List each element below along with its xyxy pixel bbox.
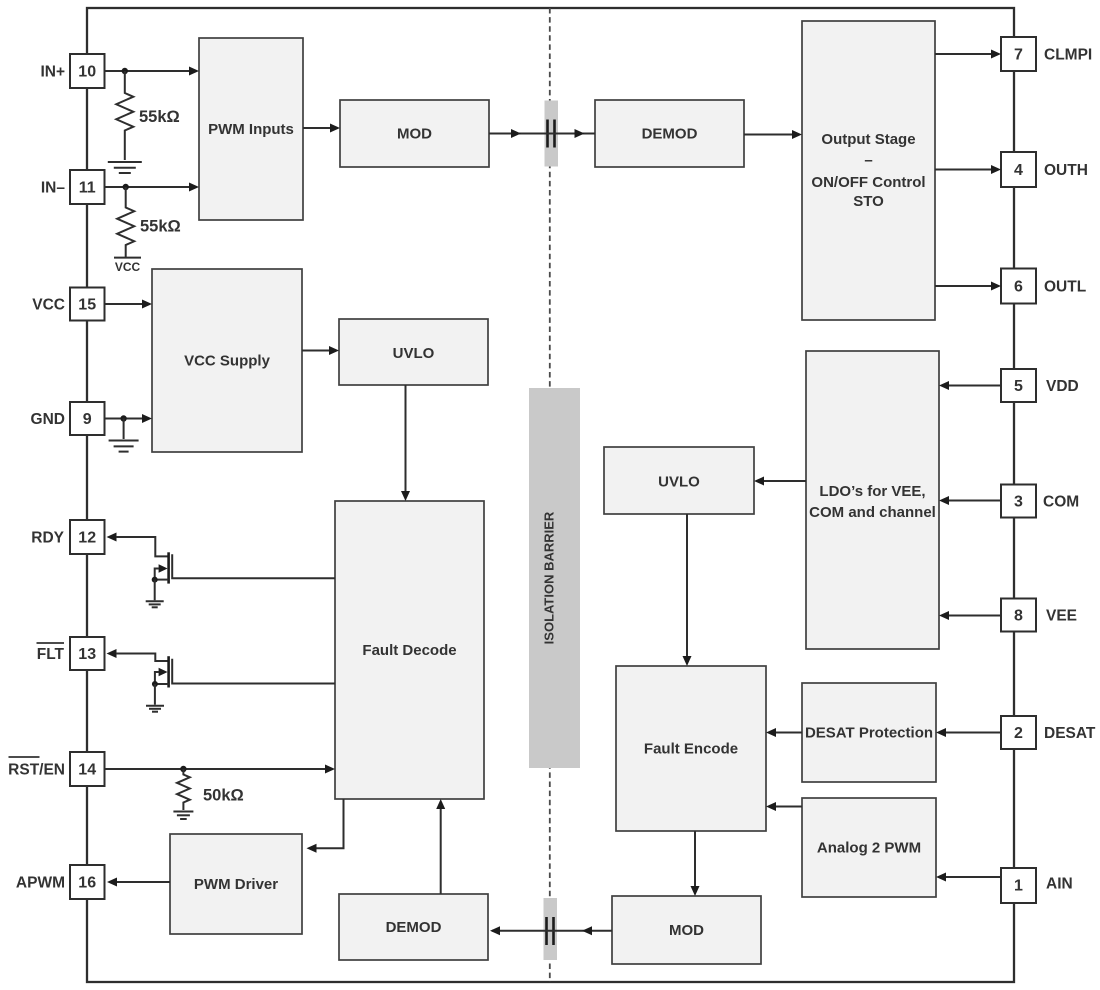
svg-text:CLMPI: CLMPI	[1044, 47, 1092, 64]
svg-text:8: 8	[1014, 608, 1023, 625]
svg-text:LDO’s for VEE,: LDO’s for VEE,	[819, 483, 925, 500]
svg-text:DEMOD: DEMOD	[386, 919, 442, 936]
svg-text:Fault Decode: Fault Decode	[362, 642, 456, 659]
svg-text:10: 10	[78, 64, 96, 81]
svg-text:COM: COM	[1043, 494, 1079, 511]
svg-text:FLT: FLT	[37, 646, 65, 663]
svg-text:COM and channel: COM and channel	[809, 504, 936, 521]
svg-text:STO: STO	[853, 193, 884, 210]
svg-text:VDD: VDD	[1046, 378, 1079, 395]
svg-text:MOD: MOD	[397, 126, 432, 143]
svg-text:11: 11	[79, 180, 96, 197]
svg-text:Output Stage: Output Stage	[821, 131, 915, 148]
svg-text:MOD: MOD	[669, 922, 704, 939]
svg-text:55kΩ: 55kΩ	[139, 108, 180, 126]
svg-text:VCC Supply: VCC Supply	[184, 353, 270, 370]
svg-text:OUTH: OUTH	[1044, 162, 1088, 179]
svg-text:VCC: VCC	[32, 297, 65, 314]
svg-text:2: 2	[1014, 725, 1023, 742]
svg-text:OUTL: OUTL	[1044, 279, 1086, 296]
svg-text:RST/EN: RST/EN	[8, 762, 65, 779]
svg-text:–: –	[864, 152, 872, 169]
svg-text:DEMOD: DEMOD	[642, 126, 698, 143]
svg-text:AIN: AIN	[1046, 876, 1073, 893]
svg-text:1: 1	[1014, 878, 1023, 895]
svg-text:55kΩ: 55kΩ	[140, 218, 181, 236]
svg-text:ON/OFF Control: ON/OFF Control	[811, 174, 925, 191]
svg-text:PWM Inputs: PWM Inputs	[208, 121, 294, 138]
svg-text:5: 5	[1014, 378, 1023, 395]
svg-text:UVLO: UVLO	[393, 345, 435, 362]
svg-text:VEE: VEE	[1046, 608, 1077, 625]
svg-text:PWM Driver: PWM Driver	[194, 876, 278, 893]
svg-text:14: 14	[78, 762, 96, 779]
svg-text:Fault Encode: Fault Encode	[644, 741, 738, 758]
svg-text:VCC: VCC	[115, 260, 141, 274]
svg-text:ISOLATION BARRIER: ISOLATION BARRIER	[542, 511, 557, 644]
svg-text:UVLO: UVLO	[658, 474, 700, 491]
svg-text:6: 6	[1014, 279, 1023, 296]
svg-text:9: 9	[83, 411, 92, 428]
svg-text:7: 7	[1014, 47, 1023, 64]
svg-text:13: 13	[78, 646, 96, 663]
svg-text:IN–: IN–	[41, 180, 66, 197]
svg-text:16: 16	[78, 875, 96, 892]
svg-text:15: 15	[78, 297, 96, 314]
svg-text:Analog 2 PWM: Analog 2 PWM	[817, 840, 921, 857]
svg-text:12: 12	[78, 530, 96, 547]
svg-text:GND: GND	[31, 411, 65, 428]
svg-text:3: 3	[1014, 494, 1023, 511]
svg-text:50kΩ: 50kΩ	[203, 787, 244, 805]
svg-text:4: 4	[1014, 162, 1023, 179]
svg-text:DESAT Protection: DESAT Protection	[805, 725, 933, 742]
svg-text:IN+: IN+	[40, 64, 65, 81]
svg-text:RDY: RDY	[31, 530, 64, 547]
svg-text:APWM: APWM	[16, 875, 65, 892]
svg-text:DESAT: DESAT	[1044, 725, 1096, 742]
